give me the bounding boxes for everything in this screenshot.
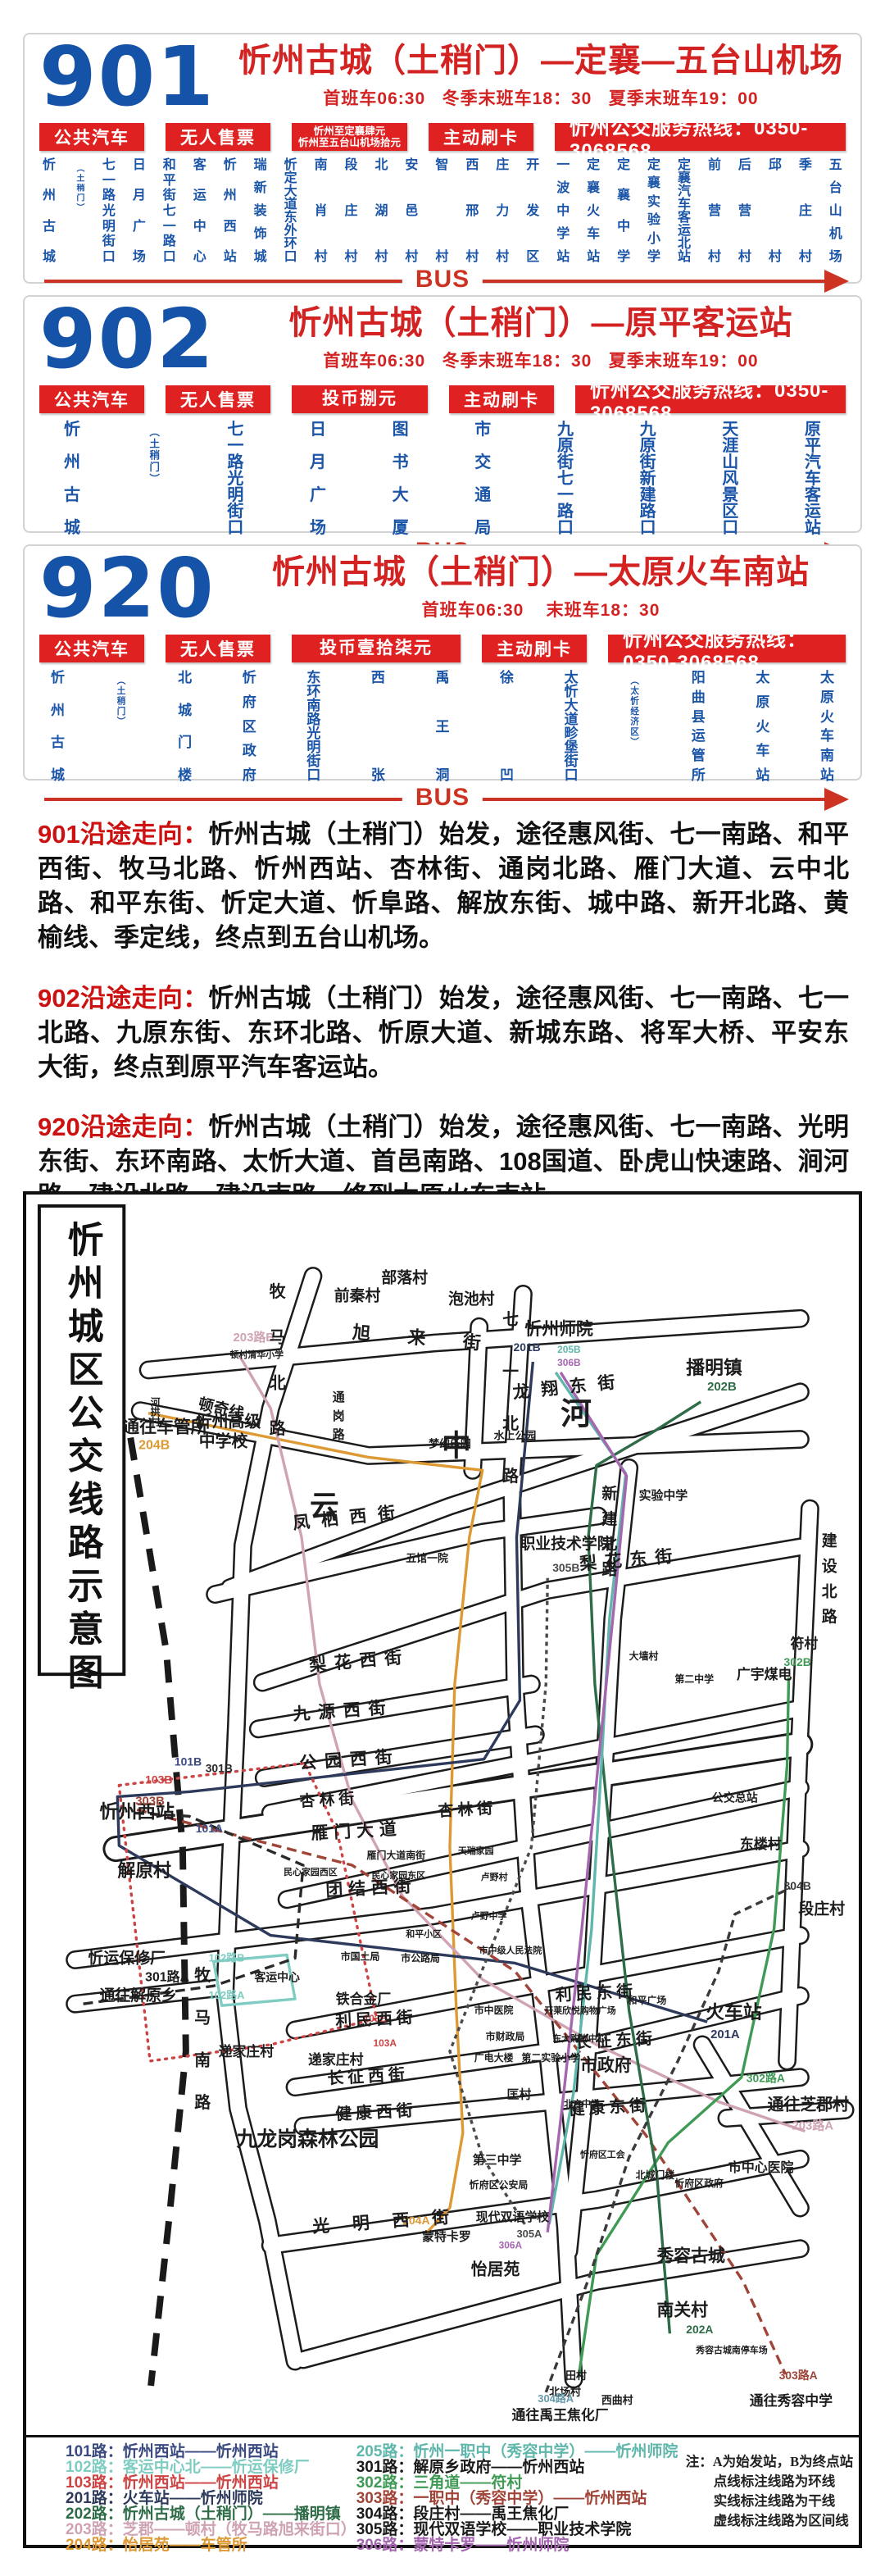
map-label: 通往禹王焦化厂 (512, 2407, 609, 2424)
stop-list: 忻州古城（土稍门）七一路光明街口日月广场图书大厦市交通局九原街七一路口九原街新建… (39, 421, 846, 536)
map-label: 云 (310, 1490, 339, 1522)
map-label: 305A (516, 2228, 542, 2240)
map-label: 304B (784, 1879, 811, 1892)
map-label: 和平广场 (628, 1995, 667, 2006)
map-label: 通往秀容中学 (750, 2392, 833, 2409)
bus-stop: 日月广场 (310, 421, 326, 536)
route-description-901: 901沿途走向：忻州古城（土稍门）始发，途径惠风街、七一南路、和平西街、牧马北路… (38, 817, 849, 956)
stop-list: 忻州古城（土稍门）北城门楼忻府区政府东环南路光明街口西张禹王洞徐凹太忻大道畛堡街… (39, 671, 846, 782)
map-label: 符村 (790, 1635, 818, 1651)
legend-entry: 302路：三角道——符村 (356, 2475, 668, 2491)
map-label: 递家庄村 (308, 2051, 364, 2068)
bus-stop: 阳曲县运管所 (692, 671, 706, 782)
bus-stop-sub: （土稍门） (116, 676, 128, 727)
map-label: 梦幻乐园 (429, 1437, 471, 1450)
map-label: 103B (145, 1773, 172, 1786)
card-header-right: 忻州古城（土稍门）—太原火车南站 首班车06:30 末班车18：30 (236, 551, 846, 621)
badge-ticketing: 无人售票 (166, 385, 270, 413)
map-label: 306B (557, 1357, 581, 1368)
map-canvas: 忻州城区公交线路示意图 通往车管所顿奇线204B203路B顿村清华小学前秦村部落… (26, 1195, 859, 2545)
legend-column-right: 205路：忻州一职中（秀容中学）——忻州师院301路：解原乡政府——忻州西站30… (356, 2444, 668, 2542)
bus-stop: 北城门楼 (178, 671, 192, 782)
bus-stop: 西张 (371, 671, 385, 782)
legend-entry: 102路：客运中心北——忻运保修厂 (66, 2460, 356, 2475)
map-label: 水上公园 (494, 1430, 537, 1442)
map-label: 长征西街 (327, 2065, 409, 2088)
legend-entry: 203路：芝郡——顿村（牧马路旭来街口） (66, 2522, 356, 2537)
map-label: 忻州师院 (524, 1319, 593, 1339)
map-label: 第二实验小学 (521, 2052, 580, 2064)
card-header-right: 忻州古城（土稍门）—原平客运站 首班车06:30 冬季末班车18：30 夏季末班… (236, 302, 846, 372)
badge-swipe-card: 主动刷卡 (429, 123, 533, 151)
map-label: 202B (707, 1381, 737, 1394)
badge-swipe-card: 主动刷卡 (482, 635, 587, 662)
bus-stop: 忻州古城 (43, 159, 56, 264)
map-label: 建设北路 (819, 1531, 837, 1634)
paragraph-label: 920沿途走向： (38, 1113, 208, 1141)
map-label: 河 (560, 1398, 592, 1432)
map-label: 市公路局 (401, 1952, 440, 1964)
route-times: 首班车06:30 冬季末班车18：30 夏季末班车19：00 (323, 348, 758, 372)
badge-hotline: 忻州公交服务热线：0350-3068568 (555, 123, 846, 151)
map-label: 303路A (779, 2369, 818, 2382)
card-header: 920 忻州古城（土稍门）—太原火车南站 首班车06:30 末班车18：30 (39, 551, 846, 626)
map-label: 五馆一院 (406, 1552, 448, 1564)
bus-stop: 太原火车南站 (820, 671, 834, 782)
map-label: 蒙特卡罗 (422, 2229, 471, 2244)
bus-stop: 禹王洞 (435, 671, 449, 782)
bus-stop: 日月广场 (133, 159, 146, 264)
route-number: 901 (39, 39, 236, 115)
map-label: 卢野村 (481, 1871, 508, 1882)
badge-hotline: 忻州公交服务热线：0350-3068568 (608, 635, 846, 662)
legend-entry: 303路：一职中（秀容中学）——忻州西站 (356, 2491, 668, 2506)
paragraph-label: 902沿途走向： (38, 984, 208, 1013)
legend-entry: 204路：怡居苑——车管所 (66, 2537, 356, 2553)
bus-stop: 太原火车站 (756, 671, 769, 782)
map-label: 市政府 (580, 2055, 632, 2075)
badge-row: 公共汽车 无人售票 投币壹拾柒元 主动刷卡 忻州公交服务热线：0350-3068… (39, 635, 846, 662)
card-header-right: 忻州古城（土稍门）—定襄—五台山机场 首班车06:30 冬季末班车18：30 夏… (236, 39, 846, 110)
map-label: 牧马南路 (192, 1966, 211, 2136)
bus-stop: 客运中心 (193, 159, 206, 264)
map-label: 304路A (538, 2392, 574, 2405)
map-label: 广电大楼 (474, 2052, 514, 2064)
bus-stop: 图书大厦 (393, 421, 409, 536)
bus-stop-sub: （土稍门） (73, 164, 85, 213)
route-description-902: 902沿途走向：忻州古城（土稍门）始发，途径惠风街、七一南路、七一北路、九原东街… (38, 981, 849, 1085)
fare-line: 投币壹拾柒元 (320, 639, 433, 658)
map-label: 北城门楼 (636, 2169, 675, 2181)
map-label: 通往芝郡村 (768, 2096, 849, 2114)
bus-stop: 邱村 (769, 159, 782, 264)
fare-line: 忻州至五台山机场拾元 (298, 137, 401, 148)
map-label: 通往解原乡 (99, 1986, 176, 2005)
map-label: 播明镇 (686, 1357, 742, 1378)
route-title: 忻州古城（土稍门）—原平客运站 (289, 305, 793, 341)
bus-stop: 定襄汽车客运北站 (678, 159, 691, 264)
legend-entry: 306路：蒙特卡罗——忻州师院 (356, 2537, 668, 2553)
map-label: 铁合金厂 (336, 1991, 392, 2007)
map-label: 和平小区 (406, 1928, 442, 1940)
route-times: 首班车06:30 冬季末班车18：30 夏季末班车19：00 (323, 85, 758, 110)
map-label: 第二中学 (674, 1673, 714, 1685)
map-label: 201A (710, 2028, 740, 2041)
map-label: 匡村 (507, 2087, 532, 2102)
map-label: 市国土局 (341, 1950, 380, 1962)
bus-stop: 忻定大道东外环口 (284, 159, 297, 264)
bus-stop: 庄力村 (496, 159, 509, 264)
badge-swipe-card: 主动刷卡 (449, 385, 554, 413)
bus-stop-sub: （土稍门） (147, 426, 161, 485)
badge-hotline: 忻州公交服务热线：0350-3068568 (575, 385, 846, 413)
map-label: 102路B (209, 1951, 245, 1964)
railway-line (130, 1438, 186, 2386)
map-label: 205B (557, 1344, 581, 1355)
map-label: 忻运保修厂 (88, 1948, 166, 1967)
bus-stop: 七一路光明街口 (102, 159, 116, 264)
legend-column-left: 101路：忻州西站——忻州西站102路：客运中心北——忻运保修厂103路：忻州西… (66, 2444, 356, 2542)
bus-stop: 定襄中学 (617, 159, 630, 264)
map-label: 301B (206, 1762, 233, 1775)
map-label: 101B (175, 1755, 202, 1768)
bus-stop: 和平街七一路口 (163, 159, 176, 264)
map-label: 102路A (209, 1989, 245, 2001)
map-label: 九源西街 (292, 1697, 395, 1724)
map-label: 杏林街 (299, 1789, 359, 1811)
map-label: 201B (513, 1340, 540, 1354)
map-label: 市中医院 (474, 2005, 514, 2016)
bus-stop: 南肖村 (315, 159, 328, 264)
legend-note-line: 实线标注线路为干线 (686, 2492, 853, 2511)
bus-stop: 西邢村 (465, 159, 479, 264)
map-label: 秀容古城 (656, 2246, 725, 2266)
map-label: 段庄村 (798, 1900, 845, 1918)
map-label: 忻州高级 (196, 1413, 261, 1431)
route-card-920: 920 忻州古城（土稍门）—太原火车南站 首班车06:30 末班车18：30 公… (23, 544, 862, 781)
map-label: 忻府区政府 (674, 2178, 724, 2189)
bus-stop: 智村 (435, 159, 448, 264)
map-label: 103A (373, 2037, 397, 2049)
map-label: 大墙村 (629, 1650, 659, 1662)
map-label: 九龙岗森林公园 (235, 2128, 379, 2150)
map-label: 卢野中学 (471, 1910, 507, 1922)
bus-stop: 忻州古城 (64, 421, 80, 536)
bus-direction-arrow: BUS (39, 271, 846, 275)
bus-stop: 前营村 (708, 159, 721, 264)
badge-fare: 投币捌元 (292, 385, 428, 413)
bus-stop: 瑞新装饰城 (254, 159, 267, 264)
map-label: 天瑞家园 (458, 1845, 494, 1856)
bus-label: BUS (402, 266, 483, 294)
map-label: 部落村 (381, 1268, 428, 1286)
route-card-901: 901 忻州古城（土稍门）—定襄—五台山机场 首班车06:30 冬季末班车18：… (23, 33, 862, 284)
map-label: 东大购物中心 (552, 2032, 606, 2044)
badge-bus-type: 公共汽车 (39, 123, 144, 151)
badge-fare: 投币壹拾柒元 (292, 635, 461, 662)
bus-stop: 九原街新建路口 (640, 421, 656, 536)
bus-stop: 徐凹 (500, 671, 514, 782)
fare-line: 投币捌元 (322, 389, 397, 409)
stop-list: 忻州古城（土稍门）七一路光明街口日月广场和平街七一路口客运中心忻州西站瑞新装饰城… (39, 159, 846, 264)
badge-bus-type: 公共汽车 (39, 385, 144, 413)
bus-stop: 开发区 (526, 159, 539, 264)
legend-entry: 304路：段庄村——禹王焦化厂 (356, 2506, 668, 2522)
route-title: 忻州古城（土稍门）—定襄—五台山机场 (238, 43, 843, 79)
map-label: 南关村 (656, 2300, 708, 2319)
map-label: 秀容古城南停车场 (695, 2344, 768, 2355)
bus-stop: 市交通局 (474, 421, 491, 536)
map-label: 泡池村 (448, 1289, 495, 1308)
map-label: 客运中心 (253, 1970, 300, 1983)
map-label: 303B (135, 1795, 165, 1808)
map-label: 雁门大道南街 (367, 1850, 426, 1861)
route-number: 920 (39, 551, 236, 626)
map-label: 现代双语学校 (476, 2210, 549, 2224)
bus-stop: 安邑村 (405, 159, 418, 264)
legend-entry: 205路：忻州一职中（秀容中学）——忻州师院 (356, 2444, 668, 2460)
map-label: 305B (552, 1561, 579, 1574)
city-bus-map: 忻州城区公交线路示意图 通往车管所顿奇线204B203路B顿村清华小学前秦村部落… (23, 1191, 862, 2548)
legend-entry: 103路：忻州西站——忻州西站 (66, 2475, 356, 2491)
map-title: 忻州城区公交线路示意图 (62, 1221, 104, 1696)
bus-stop: 原平汽车客运站 (805, 421, 821, 536)
map-label: 202A (686, 2323, 713, 2336)
bus-stop: 天涯山风景区口 (722, 421, 738, 536)
map-label: 民心家园西区 (284, 1866, 338, 1877)
arrow-head-icon (824, 270, 849, 293)
route-title: 忻州古城（土稍门）—太原火车南站 (272, 554, 810, 590)
map-label: 302路A (747, 2072, 785, 2085)
badge-ticketing: 无人售票 (166, 123, 270, 151)
bus-stop: 九原街七一路口 (557, 421, 574, 536)
badge-fare: 忻州至定襄肆元忻州至五台山机场拾元 (292, 123, 407, 151)
map-label: 递家庄村 (219, 2043, 275, 2059)
map-label: 中学校 (199, 1431, 248, 1450)
route-number: 902 (39, 302, 236, 377)
legend-entry: 301路：解原乡政府——忻州西站 (356, 2460, 668, 2475)
bus-stop-sub: （太忻经济区） (629, 676, 641, 748)
map-label: 第三中学 (473, 2152, 522, 2167)
map-label: 解原村 (117, 1860, 171, 1881)
map-label: 忻府区工会 (580, 2148, 625, 2160)
map-label: 通岗路 (331, 1390, 344, 1447)
legend-entry: 202路：忻州古城（土稍门）——播明镇 (66, 2506, 356, 2522)
map-label: 204B (138, 1438, 170, 1452)
badge-row: 公共汽车 无人售票 忻州至定襄肆元忻州至五台山机场拾元 主动刷卡 忻州公交服务热… (39, 123, 846, 151)
bus-stop: 忻府区政府 (243, 671, 256, 782)
bus-stop: 忻州古城 (51, 671, 65, 782)
bus-stop: 东环南路光明街口 (306, 671, 320, 782)
map-label: 河拱村 (149, 1396, 161, 1427)
map-label: 火车站 (706, 2001, 762, 2023)
legend-entry: 101路：忻州西站——忻州西站 (66, 2444, 356, 2460)
map-label: 101A (196, 1822, 223, 1835)
map-label: 306A (499, 2240, 523, 2251)
map-label: 市中级人民法院 (479, 1944, 542, 1955)
bus-stop: 定襄实验小学 (647, 159, 660, 264)
route-descriptions: 901沿途走向：忻州古城（土稍门）始发，途径惠风街、七一南路、和平西街、牧马北路… (38, 792, 849, 1232)
map-label: 忻府区公安局 (470, 2179, 529, 2191)
legend-note-line: 点线标注线路为环线 (686, 2472, 853, 2492)
badge-bus-type: 公共汽车 (39, 635, 144, 662)
map-label: 西曲村 (601, 2394, 633, 2406)
legend-entry: 305路：现代双语学校——职业技术学院 (356, 2522, 668, 2537)
map-label: 东楼村 (740, 1836, 782, 1852)
legend-note-line: 虚线标注线路为区间线 (686, 2511, 853, 2531)
bus-stop: 季庄村 (799, 159, 812, 264)
bus-stop: 忻州西站 (224, 159, 237, 264)
map-label: 市中心医院 (728, 2160, 794, 2175)
map-label: 市财政局 (486, 2031, 525, 2042)
legend-note-line: 注：A为始发站，B为终点站 (686, 2452, 853, 2472)
paragraph-label: 901沿途走向： (38, 820, 208, 849)
map-label: 203路A (792, 2118, 833, 2132)
card-header: 902 忻州古城（土稍门）—原平客运站 首班车06:30 冬季末班车18：30 … (39, 302, 846, 377)
badge-ticketing: 无人售票 (166, 635, 270, 662)
route-times: 首班车06:30 末班车18：30 (422, 597, 660, 621)
bus-stop: 定襄火车站 (587, 159, 600, 264)
bus-stop: 段庄村 (345, 159, 358, 264)
legend-entry: 201路：火车站——忻州师院 (66, 2491, 356, 2506)
map-label: 田村 (565, 2369, 587, 2382)
map-label: 职业技术学院 (520, 1534, 612, 1553)
map-label: 前秦村 (334, 1286, 381, 1304)
route-card-902: 902 忻州古城（土稍门）—原平客运站 首班车06:30 冬季末班车18：30 … (23, 295, 862, 533)
map-label: 牧马北路 (266, 1282, 285, 1465)
bus-stop: 五台山机场 (829, 159, 842, 264)
fare-line: 忻州至定襄肆元 (314, 125, 386, 137)
map-label: 实验中学 (639, 1488, 688, 1503)
bus-stop: 北湖村 (374, 159, 388, 264)
card-header: 901 忻州古城（土稍门）—定襄—五台山机场 首班车06:30 冬季末班车18：… (39, 39, 846, 115)
map-legend: 101路：忻州西站——忻州西站102路：客运中心北——忻运保修厂103路：忻州西… (26, 2435, 859, 2545)
road (303, 2249, 800, 2360)
map-label: 广宇煤电 (737, 1666, 792, 1682)
bus-stop: 太忻大道畛堡街口 (565, 671, 579, 782)
map-label: 301路A (145, 1968, 189, 1984)
bus-stop: 一波中学站 (556, 159, 570, 264)
bus-stop: 七一路光明街口 (227, 421, 243, 536)
bus-stop: 后营村 (738, 159, 751, 264)
map-label: 开莱欣悦购物广场 (544, 2005, 616, 2016)
map-label: 公交总站 (712, 1791, 758, 1804)
badge-row: 公共汽车 无人售票 投币捌元 主动刷卡 忻州公交服务热线：0350-306856… (39, 385, 846, 413)
map-label: 怡居苑 (471, 2260, 520, 2279)
legend-note: 注：A为始发站，B为终点站点线标注线路为环线实线标注线路为干线虚线标注线路为区间… (668, 2444, 853, 2542)
